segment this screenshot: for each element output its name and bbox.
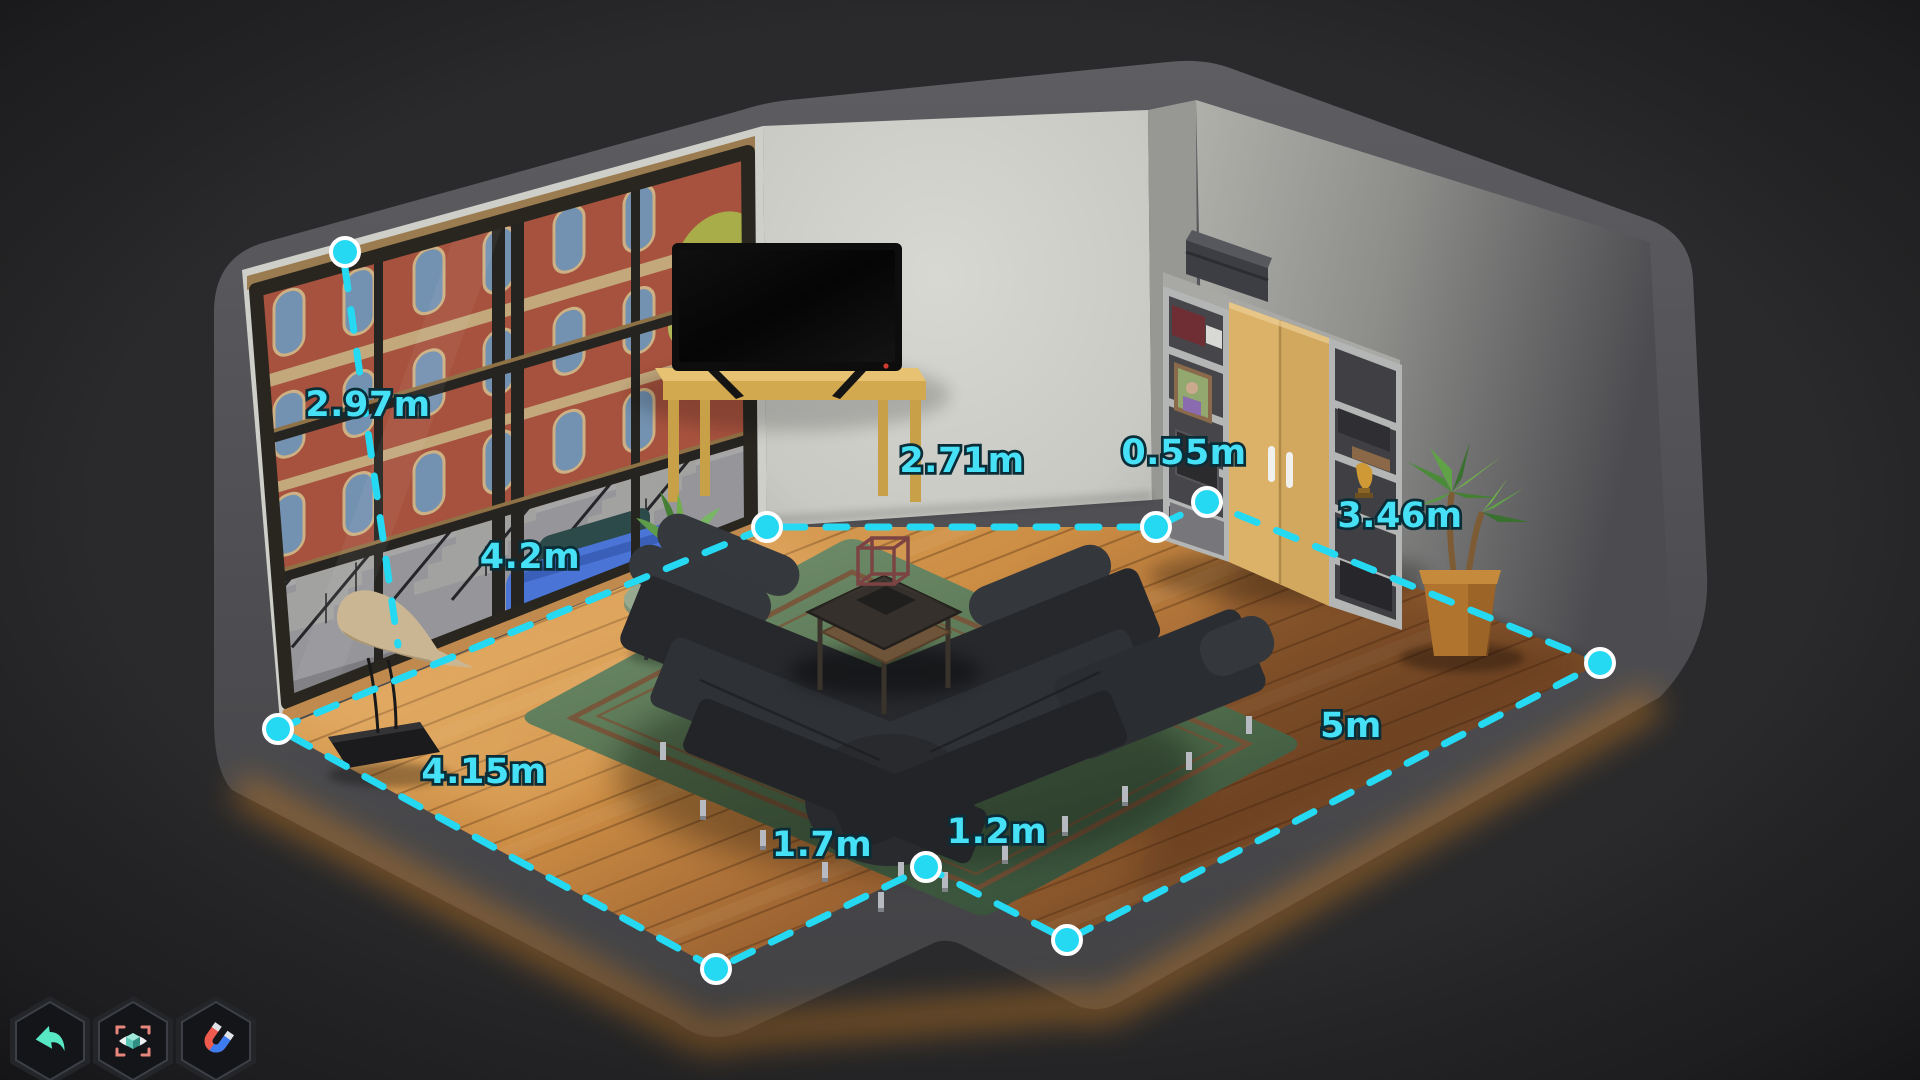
measure-dot-right-corner[interactable] bbox=[1586, 649, 1614, 677]
measure-dot-tvwall-right[interactable] bbox=[1142, 513, 1170, 541]
measure-dot-window-top[interactable] bbox=[331, 238, 359, 266]
measure-dot-tvwall-left[interactable] bbox=[753, 513, 781, 541]
measure-label-tv-wall: 2.71m bbox=[899, 441, 1024, 481]
measure-label-right-wall: 3.46m bbox=[1337, 496, 1462, 536]
measure-dot-window-corner[interactable] bbox=[264, 715, 292, 743]
measure-label-front-right: 5m bbox=[1320, 706, 1382, 746]
measure-dot-shelf[interactable] bbox=[1193, 488, 1221, 516]
measure-dot-alcove-front[interactable] bbox=[1053, 926, 1081, 954]
vignette bbox=[0, 0, 1920, 1080]
toolbar bbox=[10, 996, 256, 1080]
room-planner-app: 2.97m 4.2m 2.71m 0.55m 3.46m 4.15m 1.7m … bbox=[0, 0, 1920, 1080]
measure-label-window-wall: 4.2m bbox=[480, 537, 580, 577]
measure-label-shelf-offset: 0.55m bbox=[1121, 433, 1246, 473]
measure-label-alcove-front: 1.2m bbox=[947, 812, 1047, 852]
measure-label-alcove-left: 1.7m bbox=[772, 825, 872, 865]
measure-label-front-left: 4.15m bbox=[421, 752, 546, 792]
measure-dot-front-left[interactable] bbox=[702, 955, 730, 983]
room-scene-canvas: 2.97m 4.2m 2.71m 0.55m 3.46m 4.15m 1.7m … bbox=[0, 0, 1920, 1080]
measure-dot-alcove-left[interactable] bbox=[912, 853, 940, 881]
measure-label-window-height: 2.97m bbox=[305, 385, 430, 425]
